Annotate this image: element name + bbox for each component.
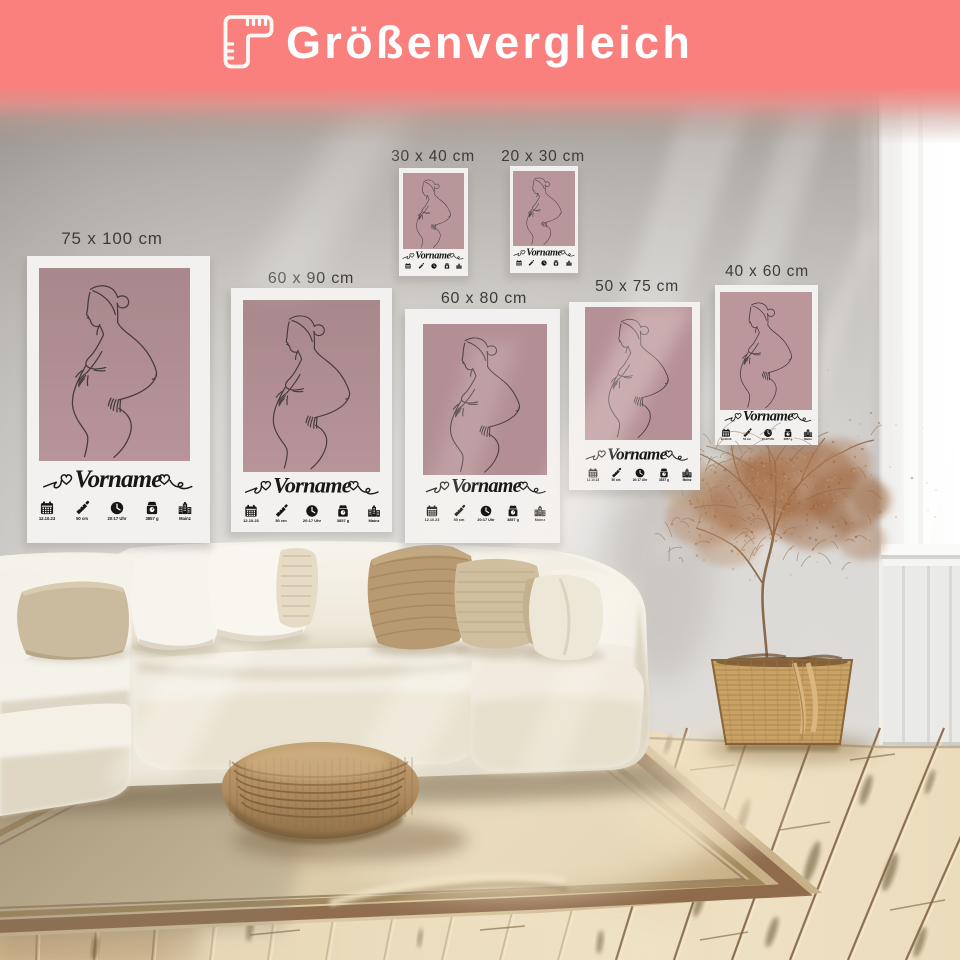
svg-text:12.10.23: 12.10.23	[243, 518, 259, 523]
svg-text:3857 g: 3857 g	[784, 437, 793, 441]
svg-text:30 x 40 cm: 30 x 40 cm	[391, 148, 475, 165]
svg-text:60 x 80 cm: 60 x 80 cm	[441, 290, 527, 307]
svg-text:3857 g: 3857 g	[145, 516, 158, 521]
svg-text:Mainz: Mainz	[804, 437, 812, 441]
svg-text:20:17 Uhr: 20:17 Uhr	[303, 518, 322, 523]
svg-text:20:17 Uhr: 20:17 Uhr	[107, 516, 126, 521]
svg-text:Mainz: Mainz	[683, 478, 692, 482]
svg-text:12.10.23: 12.10.23	[39, 516, 56, 521]
svg-text:50 cm: 50 cm	[743, 437, 751, 441]
svg-text:Mainz: Mainz	[368, 518, 379, 523]
svg-text:75 x 100 cm: 75 x 100 cm	[61, 229, 162, 248]
svg-text:20:17 Uhr: 20:17 Uhr	[477, 518, 495, 522]
svg-text:20 x 30 cm: 20 x 30 cm	[501, 148, 585, 165]
svg-text:3857 g: 3857 g	[659, 478, 669, 482]
svg-text:20:17 Uhr: 20:17 Uhr	[633, 478, 648, 482]
svg-text:Mainz: Mainz	[179, 516, 191, 521]
svg-text:Größenvergleich: Größenvergleich	[286, 17, 693, 68]
svg-text:3857 g: 3857 g	[337, 518, 350, 523]
svg-text:50 cm: 50 cm	[275, 518, 287, 523]
svg-text:40 x 60 cm: 40 x 60 cm	[725, 263, 809, 280]
svg-text:3857 g: 3857 g	[507, 518, 520, 522]
svg-text:50 cm: 50 cm	[611, 478, 620, 482]
svg-text:50 x 75 cm: 50 x 75 cm	[595, 278, 679, 295]
svg-text:50 cm: 50 cm	[76, 516, 88, 521]
